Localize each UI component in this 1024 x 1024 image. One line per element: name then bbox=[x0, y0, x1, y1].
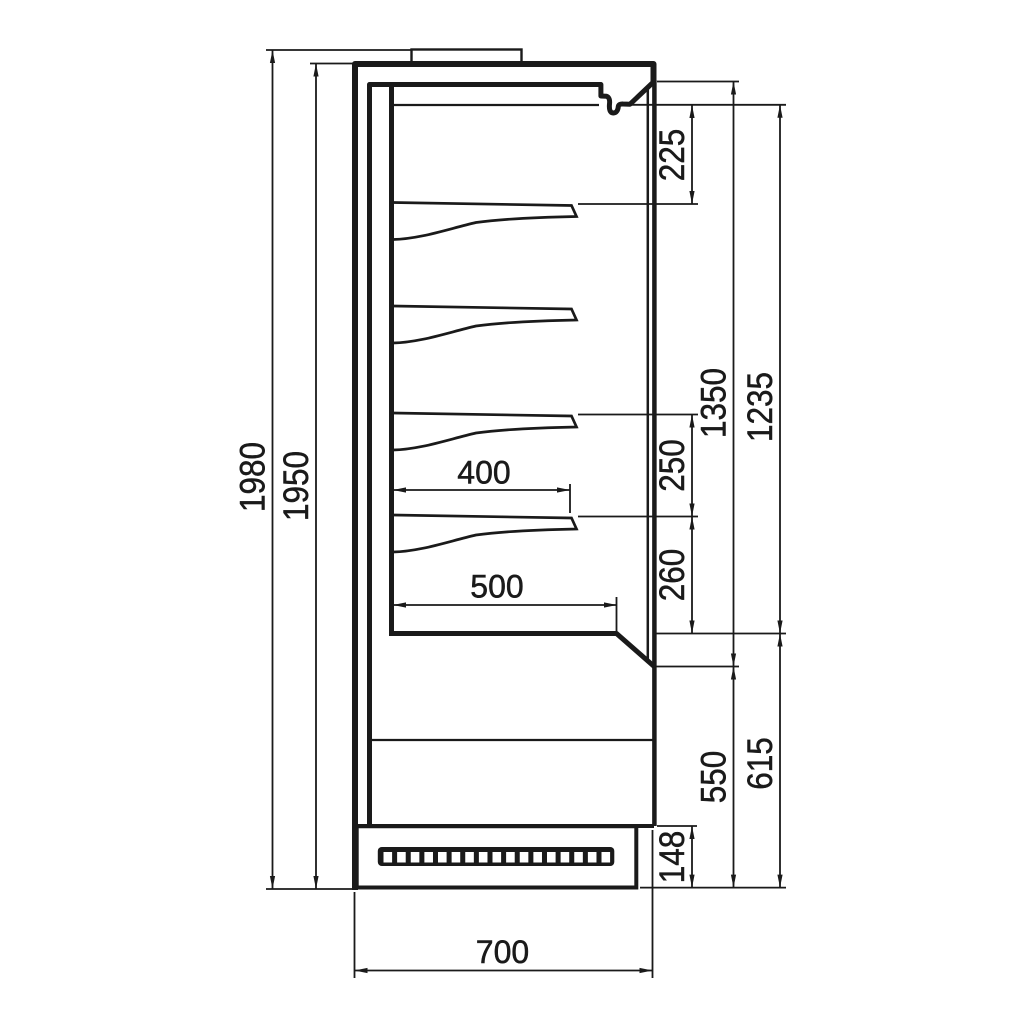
svg-text:250: 250 bbox=[654, 439, 693, 492]
svg-text:500: 500 bbox=[470, 569, 523, 605]
svg-text:225: 225 bbox=[654, 129, 693, 182]
svg-text:1950: 1950 bbox=[278, 451, 317, 521]
svg-text:260: 260 bbox=[654, 549, 693, 602]
svg-text:1350: 1350 bbox=[695, 368, 734, 438]
svg-text:615: 615 bbox=[742, 737, 781, 790]
svg-text:700: 700 bbox=[476, 934, 529, 970]
svg-text:550: 550 bbox=[695, 751, 734, 804]
svg-text:148: 148 bbox=[654, 831, 693, 884]
svg-text:1235: 1235 bbox=[742, 372, 781, 442]
svg-text:1980: 1980 bbox=[234, 442, 273, 512]
svg-text:400: 400 bbox=[457, 455, 510, 491]
